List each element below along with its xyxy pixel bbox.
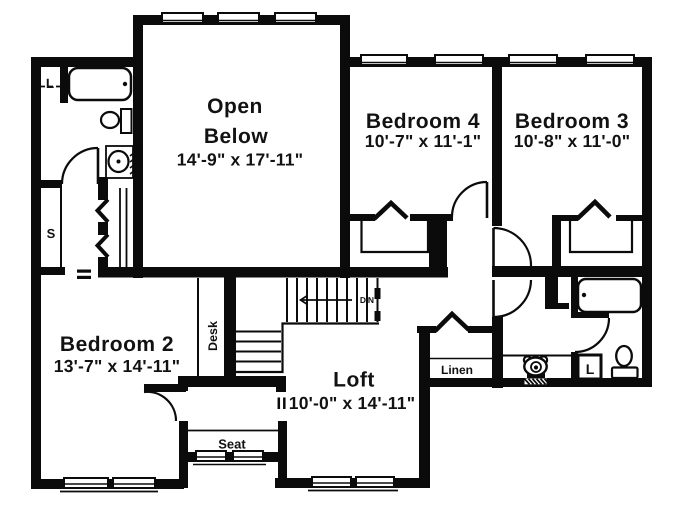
svg-text:N: N <box>368 295 374 305</box>
svg-text:L: L <box>586 361 595 377</box>
svg-text:S: S <box>47 226 56 241</box>
svg-text:Bedroom 4: Bedroom 4 <box>366 110 480 133</box>
svg-text:10'-0" x 14'-11": 10'-0" x 14'-11" <box>289 393 415 413</box>
svg-text:14'-9" x 17'-11": 14'-9" x 17'-11" <box>177 150 303 170</box>
svg-text:10'-8" x 11'-0": 10'-8" x 11'-0" <box>514 131 630 151</box>
svg-text:Bedroom 2: Bedroom 2 <box>60 333 174 356</box>
svg-text:Linen: Linen <box>441 363 473 377</box>
svg-text:Below: Below <box>204 125 269 148</box>
svg-text:Open: Open <box>207 95 263 118</box>
svg-text:L: L <box>46 76 54 91</box>
svg-text:10'-7" x 11'-1": 10'-7" x 11'-1" <box>365 131 481 151</box>
svg-text:13'-7" x 14'-11": 13'-7" x 14'-11" <box>54 356 180 376</box>
svg-text:Seat: Seat <box>218 437 246 452</box>
svg-text:Loft: Loft <box>333 369 375 392</box>
svg-text:Desk: Desk <box>206 321 220 351</box>
svg-text:D: D <box>360 295 366 305</box>
svg-text:Bedroom 3: Bedroom 3 <box>515 110 629 133</box>
